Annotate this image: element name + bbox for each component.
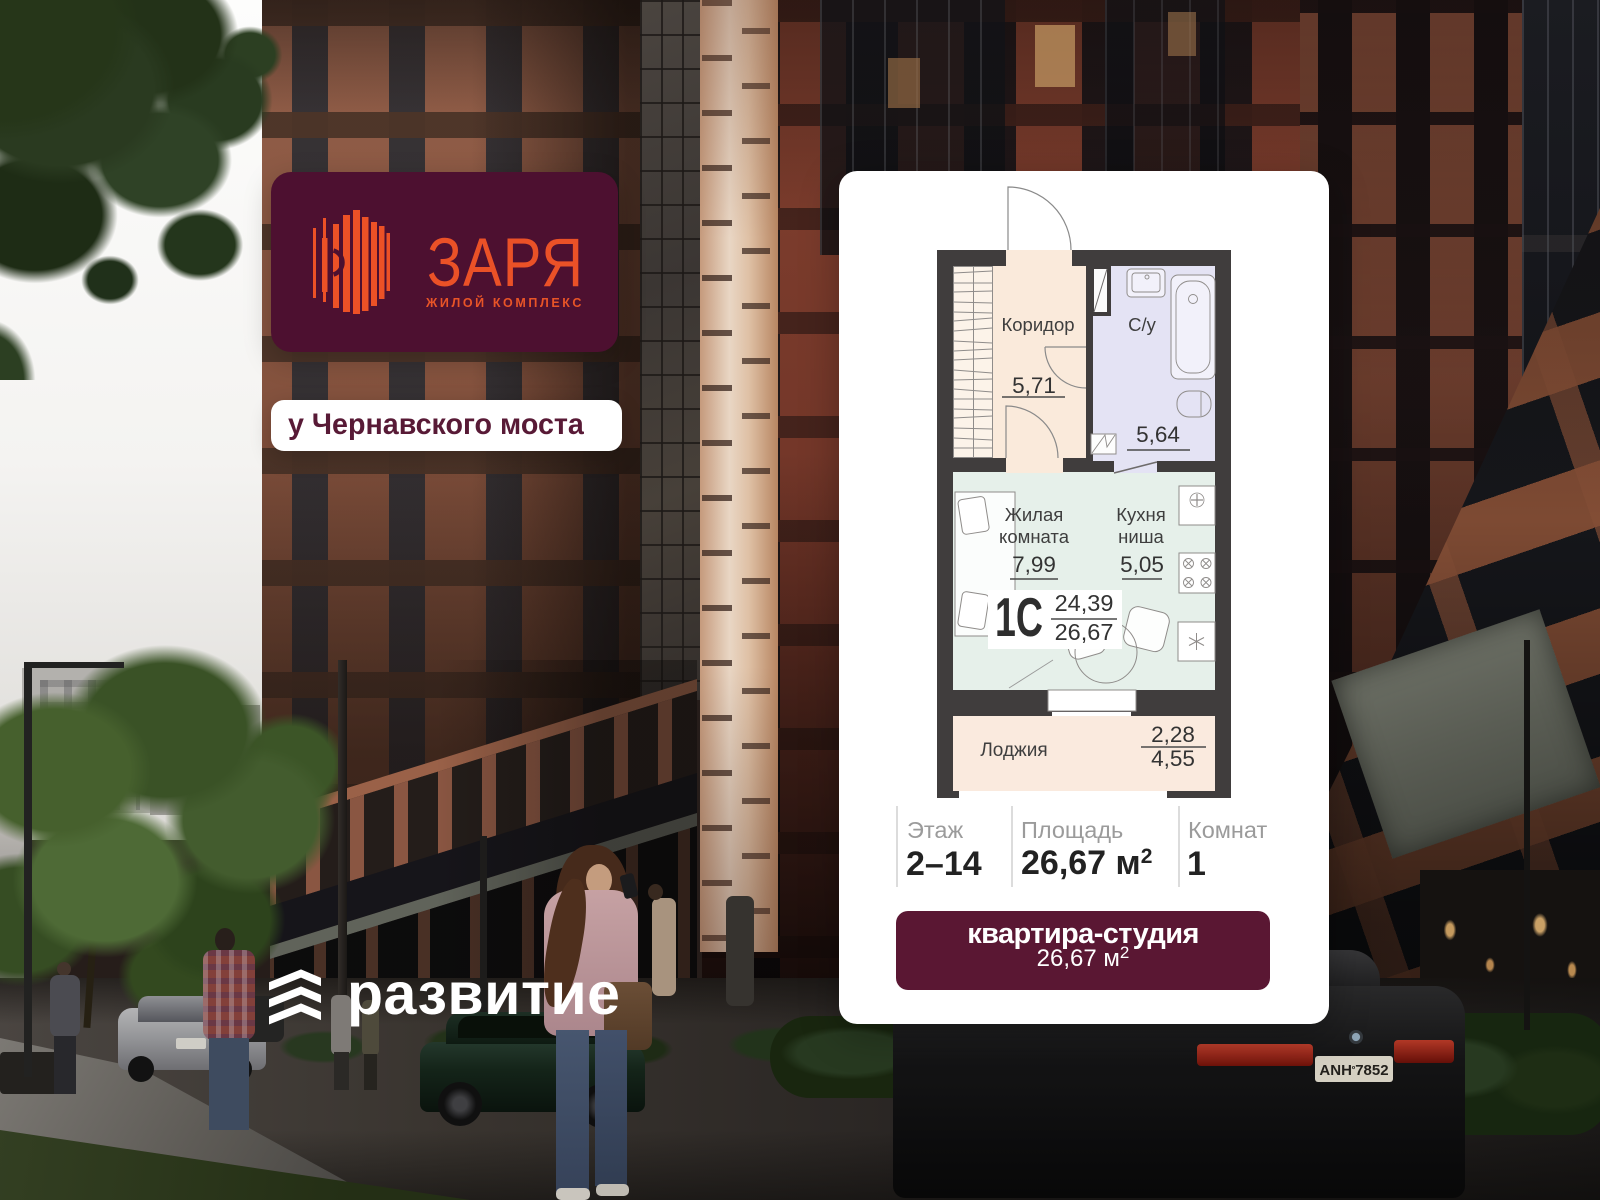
svg-text:2,28: 2,28 [1151, 722, 1195, 747]
svg-text:Кухня: Кухня [1116, 504, 1166, 525]
svg-text:Жилая: Жилая [1005, 504, 1064, 525]
svg-text:5,71: 5,71 [1012, 373, 1056, 398]
svg-text:Лоджия: Лоджия [980, 740, 1047, 761]
svg-text:24,39: 24,39 [1055, 590, 1114, 616]
svg-text:1С: 1С [995, 586, 1043, 648]
svg-text:7,99: 7,99 [1012, 552, 1056, 577]
svg-text:С/у: С/у [1128, 314, 1157, 335]
svg-text:5,05: 5,05 [1120, 552, 1164, 577]
svg-text:комната: комната [999, 526, 1070, 547]
svg-text:ниша: ниша [1118, 526, 1164, 547]
svg-text:5,64: 5,64 [1136, 422, 1180, 447]
svg-text:Коридор: Коридор [1001, 314, 1074, 335]
svg-text:26,67: 26,67 [1055, 619, 1114, 645]
svg-text:4,55: 4,55 [1151, 746, 1195, 771]
